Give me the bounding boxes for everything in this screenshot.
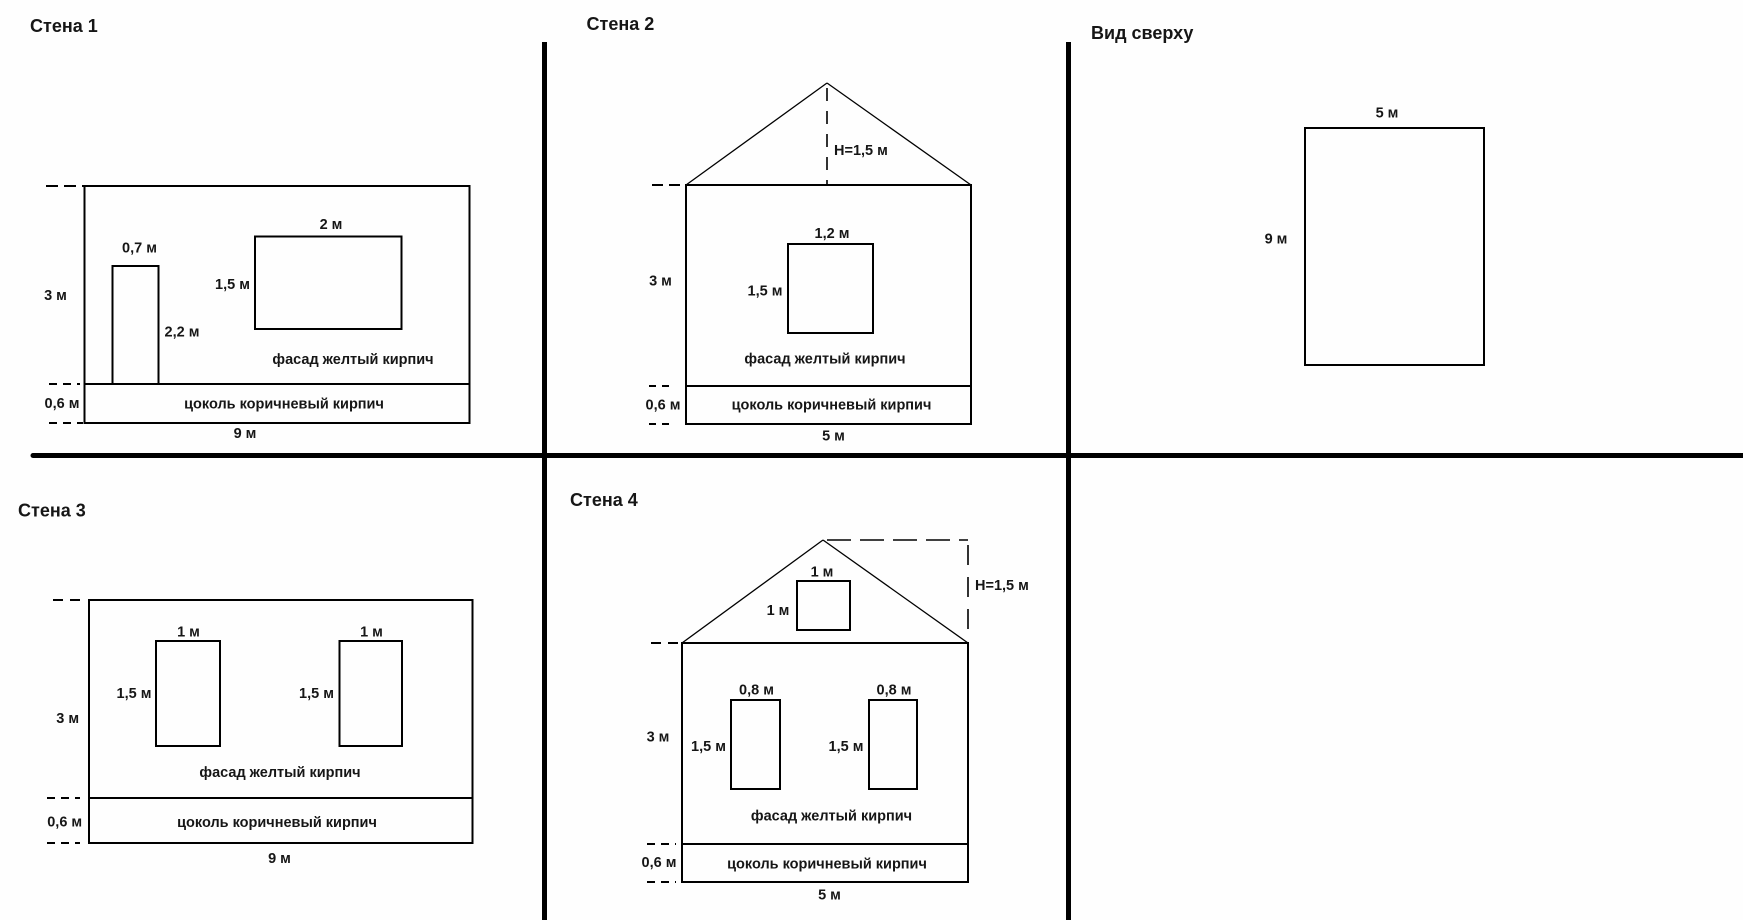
svg-text:0,6 м: 0,6 м: [47, 815, 82, 831]
svg-text:9 м: 9 м: [268, 851, 291, 867]
svg-text:фасад желтый кирпич: фасад желтый кирпич: [272, 352, 433, 368]
svg-text:2,2 м: 2,2 м: [165, 325, 200, 341]
svg-text:цоколь коричневый кирпич: цоколь коричневый кирпич: [727, 857, 927, 873]
svg-text:0,6 м: 0,6 м: [642, 855, 677, 871]
svg-text:1 м: 1 м: [767, 603, 790, 619]
svg-text:1,5 м: 1,5 м: [829, 739, 864, 755]
svg-text:Стена 4: Стена 4: [570, 490, 638, 510]
svg-text:0,6 м: 0,6 м: [45, 396, 80, 412]
svg-text:9 м: 9 м: [1265, 232, 1288, 248]
svg-text:цоколь коричневый кирпич: цоколь коричневый кирпич: [732, 398, 932, 414]
svg-text:1,5 м: 1,5 м: [691, 739, 726, 755]
svg-text:0,8 м: 0,8 м: [877, 683, 912, 699]
svg-text:1,5 м: 1,5 м: [299, 686, 334, 702]
svg-text:фасад желтый кирпич: фасад желтый кирпич: [744, 352, 905, 368]
svg-text:Н=1,5 м: Н=1,5 м: [834, 143, 888, 159]
svg-text:1,5 м: 1,5 м: [748, 284, 783, 300]
svg-text:1,5 м: 1,5 м: [117, 686, 152, 702]
svg-text:фасад желтый кирпич: фасад желтый кирпич: [199, 765, 360, 781]
svg-text:1 м: 1 м: [360, 625, 383, 641]
svg-text:0,7 м: 0,7 м: [122, 240, 157, 256]
svg-text:1 м: 1 м: [811, 565, 834, 581]
svg-text:3 м: 3 м: [44, 288, 67, 304]
svg-text:3 м: 3 м: [56, 711, 79, 727]
svg-text:0,8 м: 0,8 м: [739, 683, 774, 699]
svg-text:1 м: 1 м: [177, 625, 200, 641]
svg-text:3 м: 3 м: [649, 274, 672, 290]
svg-text:5 м: 5 м: [818, 888, 841, 904]
svg-text:Стена 2: Стена 2: [587, 14, 655, 34]
svg-text:2 м: 2 м: [320, 217, 343, 233]
svg-text:0,6 м: 0,6 м: [646, 398, 681, 414]
svg-text:Стена 1: Стена 1: [30, 16, 98, 36]
svg-text:Вид сверху: Вид сверху: [1091, 23, 1193, 43]
svg-text:Н=1,5 м: Н=1,5 м: [975, 578, 1029, 594]
svg-text:Стена 3: Стена 3: [18, 501, 86, 521]
svg-text:цоколь коричневый кирпич: цоколь коричневый кирпич: [177, 815, 377, 831]
svg-text:5 м: 5 м: [1376, 106, 1399, 122]
svg-text:3 м: 3 м: [647, 730, 670, 746]
svg-text:9 м: 9 м: [234, 426, 257, 442]
svg-text:цоколь коричневый кирпич: цоколь коричневый кирпич: [184, 397, 384, 413]
svg-text:1,5 м: 1,5 м: [215, 277, 250, 293]
svg-text:фасад желтый кирпич: фасад желтый кирпич: [751, 809, 912, 825]
svg-text:1,2 м: 1,2 м: [815, 226, 850, 242]
svg-text:5 м: 5 м: [822, 429, 845, 445]
